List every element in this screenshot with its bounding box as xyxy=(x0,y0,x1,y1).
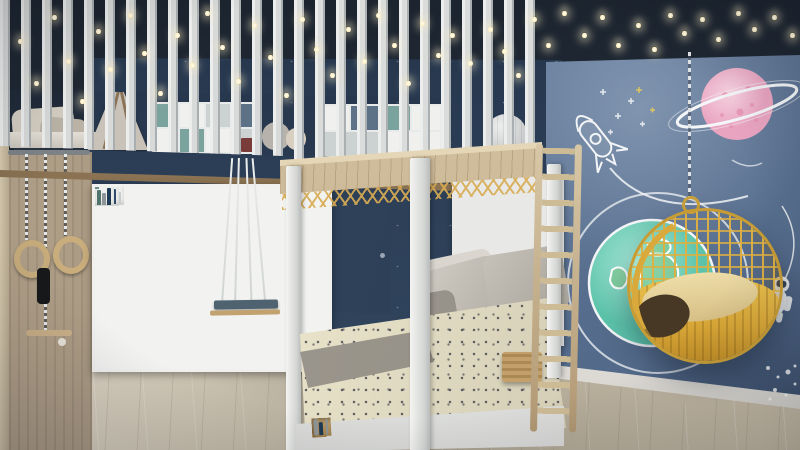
book-spine xyxy=(314,419,319,435)
door-handle xyxy=(380,253,385,258)
bed-post xyxy=(286,166,301,450)
trapeze-ball xyxy=(58,338,66,346)
gym-grip xyxy=(37,268,50,304)
gym-ring xyxy=(53,236,89,274)
ladder-rungs xyxy=(537,148,575,433)
book-spine xyxy=(319,422,324,435)
gym-frame-edge xyxy=(0,138,9,450)
egg-hanging-chair xyxy=(627,208,783,364)
hanging-chain xyxy=(688,52,691,200)
shelf-cell xyxy=(95,187,99,189)
chair-body xyxy=(627,208,783,364)
shelf-cell xyxy=(95,187,114,206)
bed-post xyxy=(410,158,430,450)
book-spine xyxy=(107,188,111,205)
book-spine xyxy=(97,190,101,205)
bedroom-render xyxy=(0,0,800,450)
wood-ladder xyxy=(530,144,582,433)
swing-seat xyxy=(214,299,278,309)
underbed-cubby xyxy=(311,418,326,437)
trapeze-bar xyxy=(26,330,72,336)
book-spine xyxy=(102,193,106,205)
